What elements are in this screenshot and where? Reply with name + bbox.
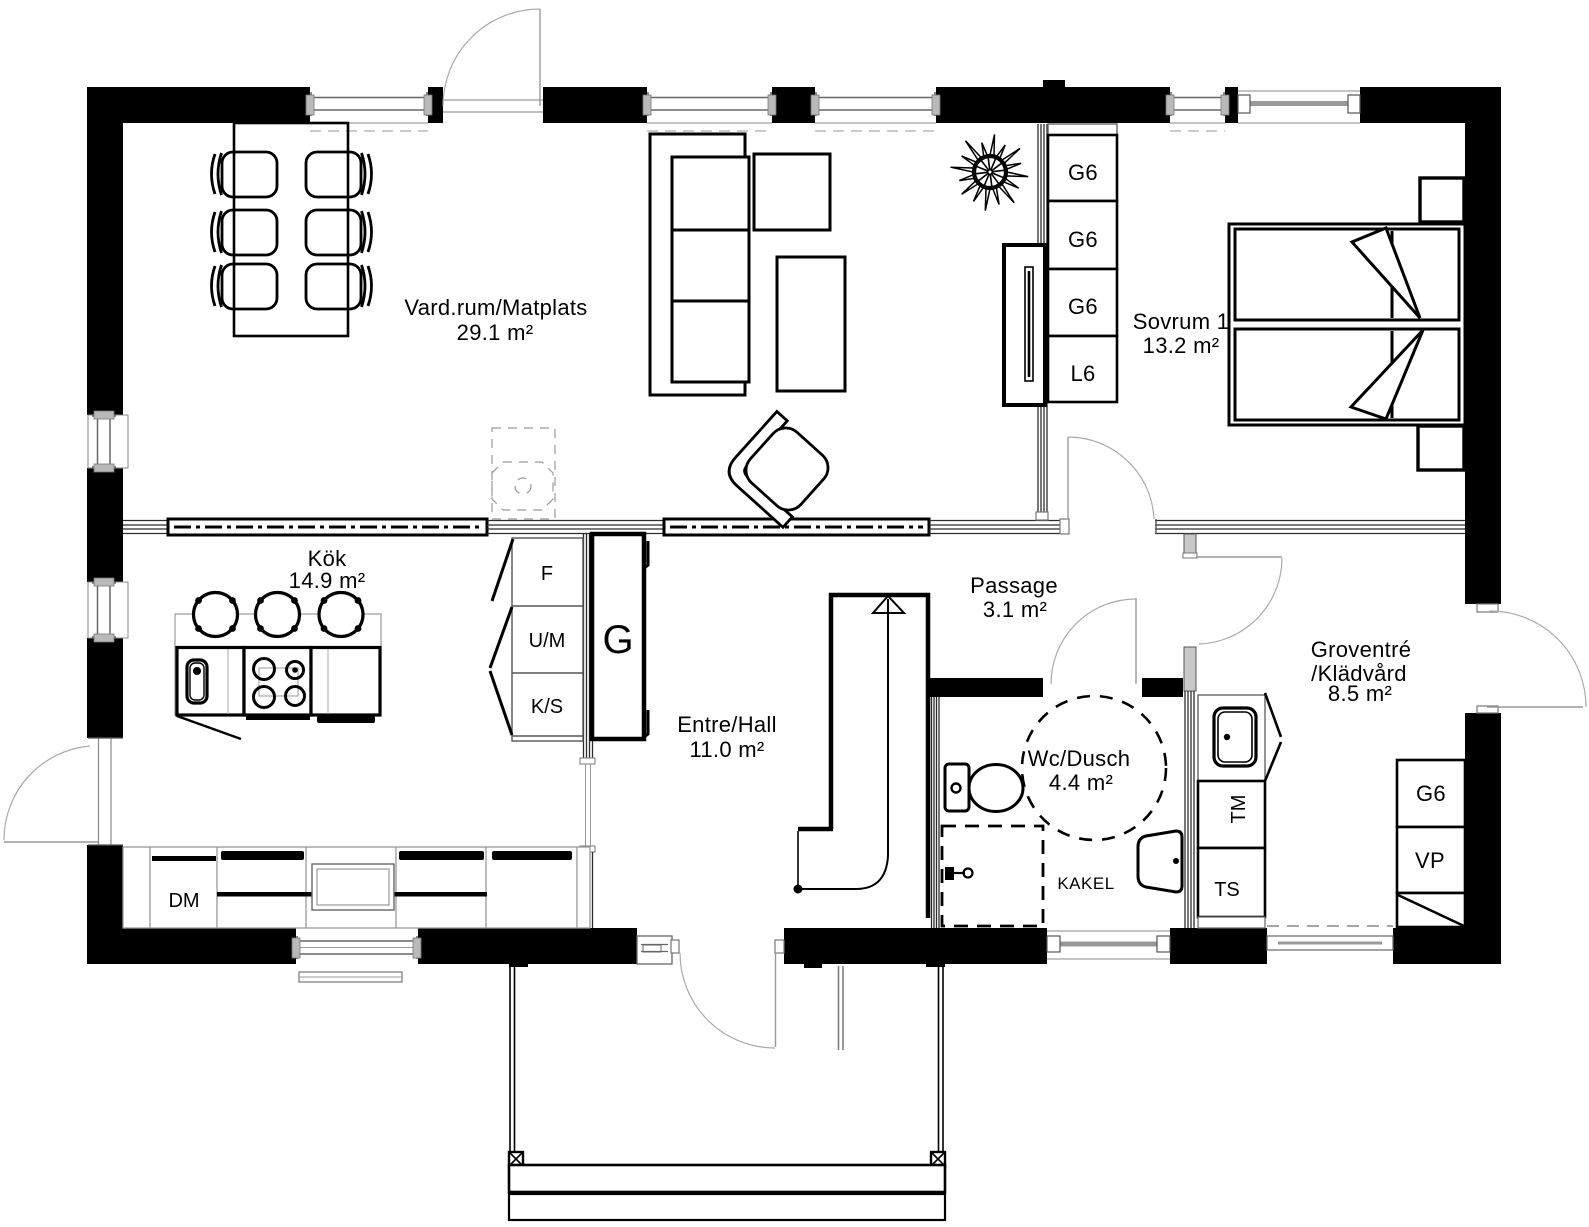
svg-text:G6: G6 [1068, 160, 1098, 185]
svg-text:L6: L6 [1070, 361, 1095, 386]
svg-text:G: G [602, 618, 633, 662]
svg-text:Vard.rum/Matplats: Vard.rum/Matplats [404, 295, 587, 320]
svg-text:13.2 m²: 13.2 m² [1143, 333, 1220, 358]
svg-text:Wc/Dusch: Wc/Dusch [1028, 746, 1131, 771]
svg-text:G6: G6 [1068, 294, 1098, 319]
svg-text:K/S: K/S [531, 696, 563, 718]
svg-text:Entre/Hall: Entre/Hall [677, 712, 777, 737]
svg-text:Groventré: Groventré [1311, 637, 1412, 662]
svg-text:VP: VP [1415, 848, 1445, 873]
svg-text:Passage: Passage [970, 573, 1058, 598]
svg-text:F: F [541, 563, 553, 585]
svg-text:4.4 m²: 4.4 m² [1049, 770, 1113, 795]
svg-text:KAKEL: KAKEL [1057, 874, 1114, 893]
svg-text:29.1 m²: 29.1 m² [457, 320, 534, 345]
svg-text:14.9 m²: 14.9 m² [289, 568, 366, 593]
svg-text:TS: TS [1214, 879, 1240, 901]
svg-text:TM: TM [1228, 795, 1250, 824]
svg-text:3.1 m²: 3.1 m² [983, 597, 1047, 622]
svg-text:G6: G6 [1416, 781, 1446, 806]
svg-text:U/M: U/M [529, 630, 566, 652]
svg-text:Sovrum 1: Sovrum 1 [1133, 309, 1230, 334]
svg-text:G6: G6 [1068, 227, 1098, 252]
svg-text:11.0 m²: 11.0 m² [689, 737, 764, 762]
svg-text:8.5 m²: 8.5 m² [1328, 681, 1392, 706]
svg-text:DM: DM [168, 890, 199, 912]
